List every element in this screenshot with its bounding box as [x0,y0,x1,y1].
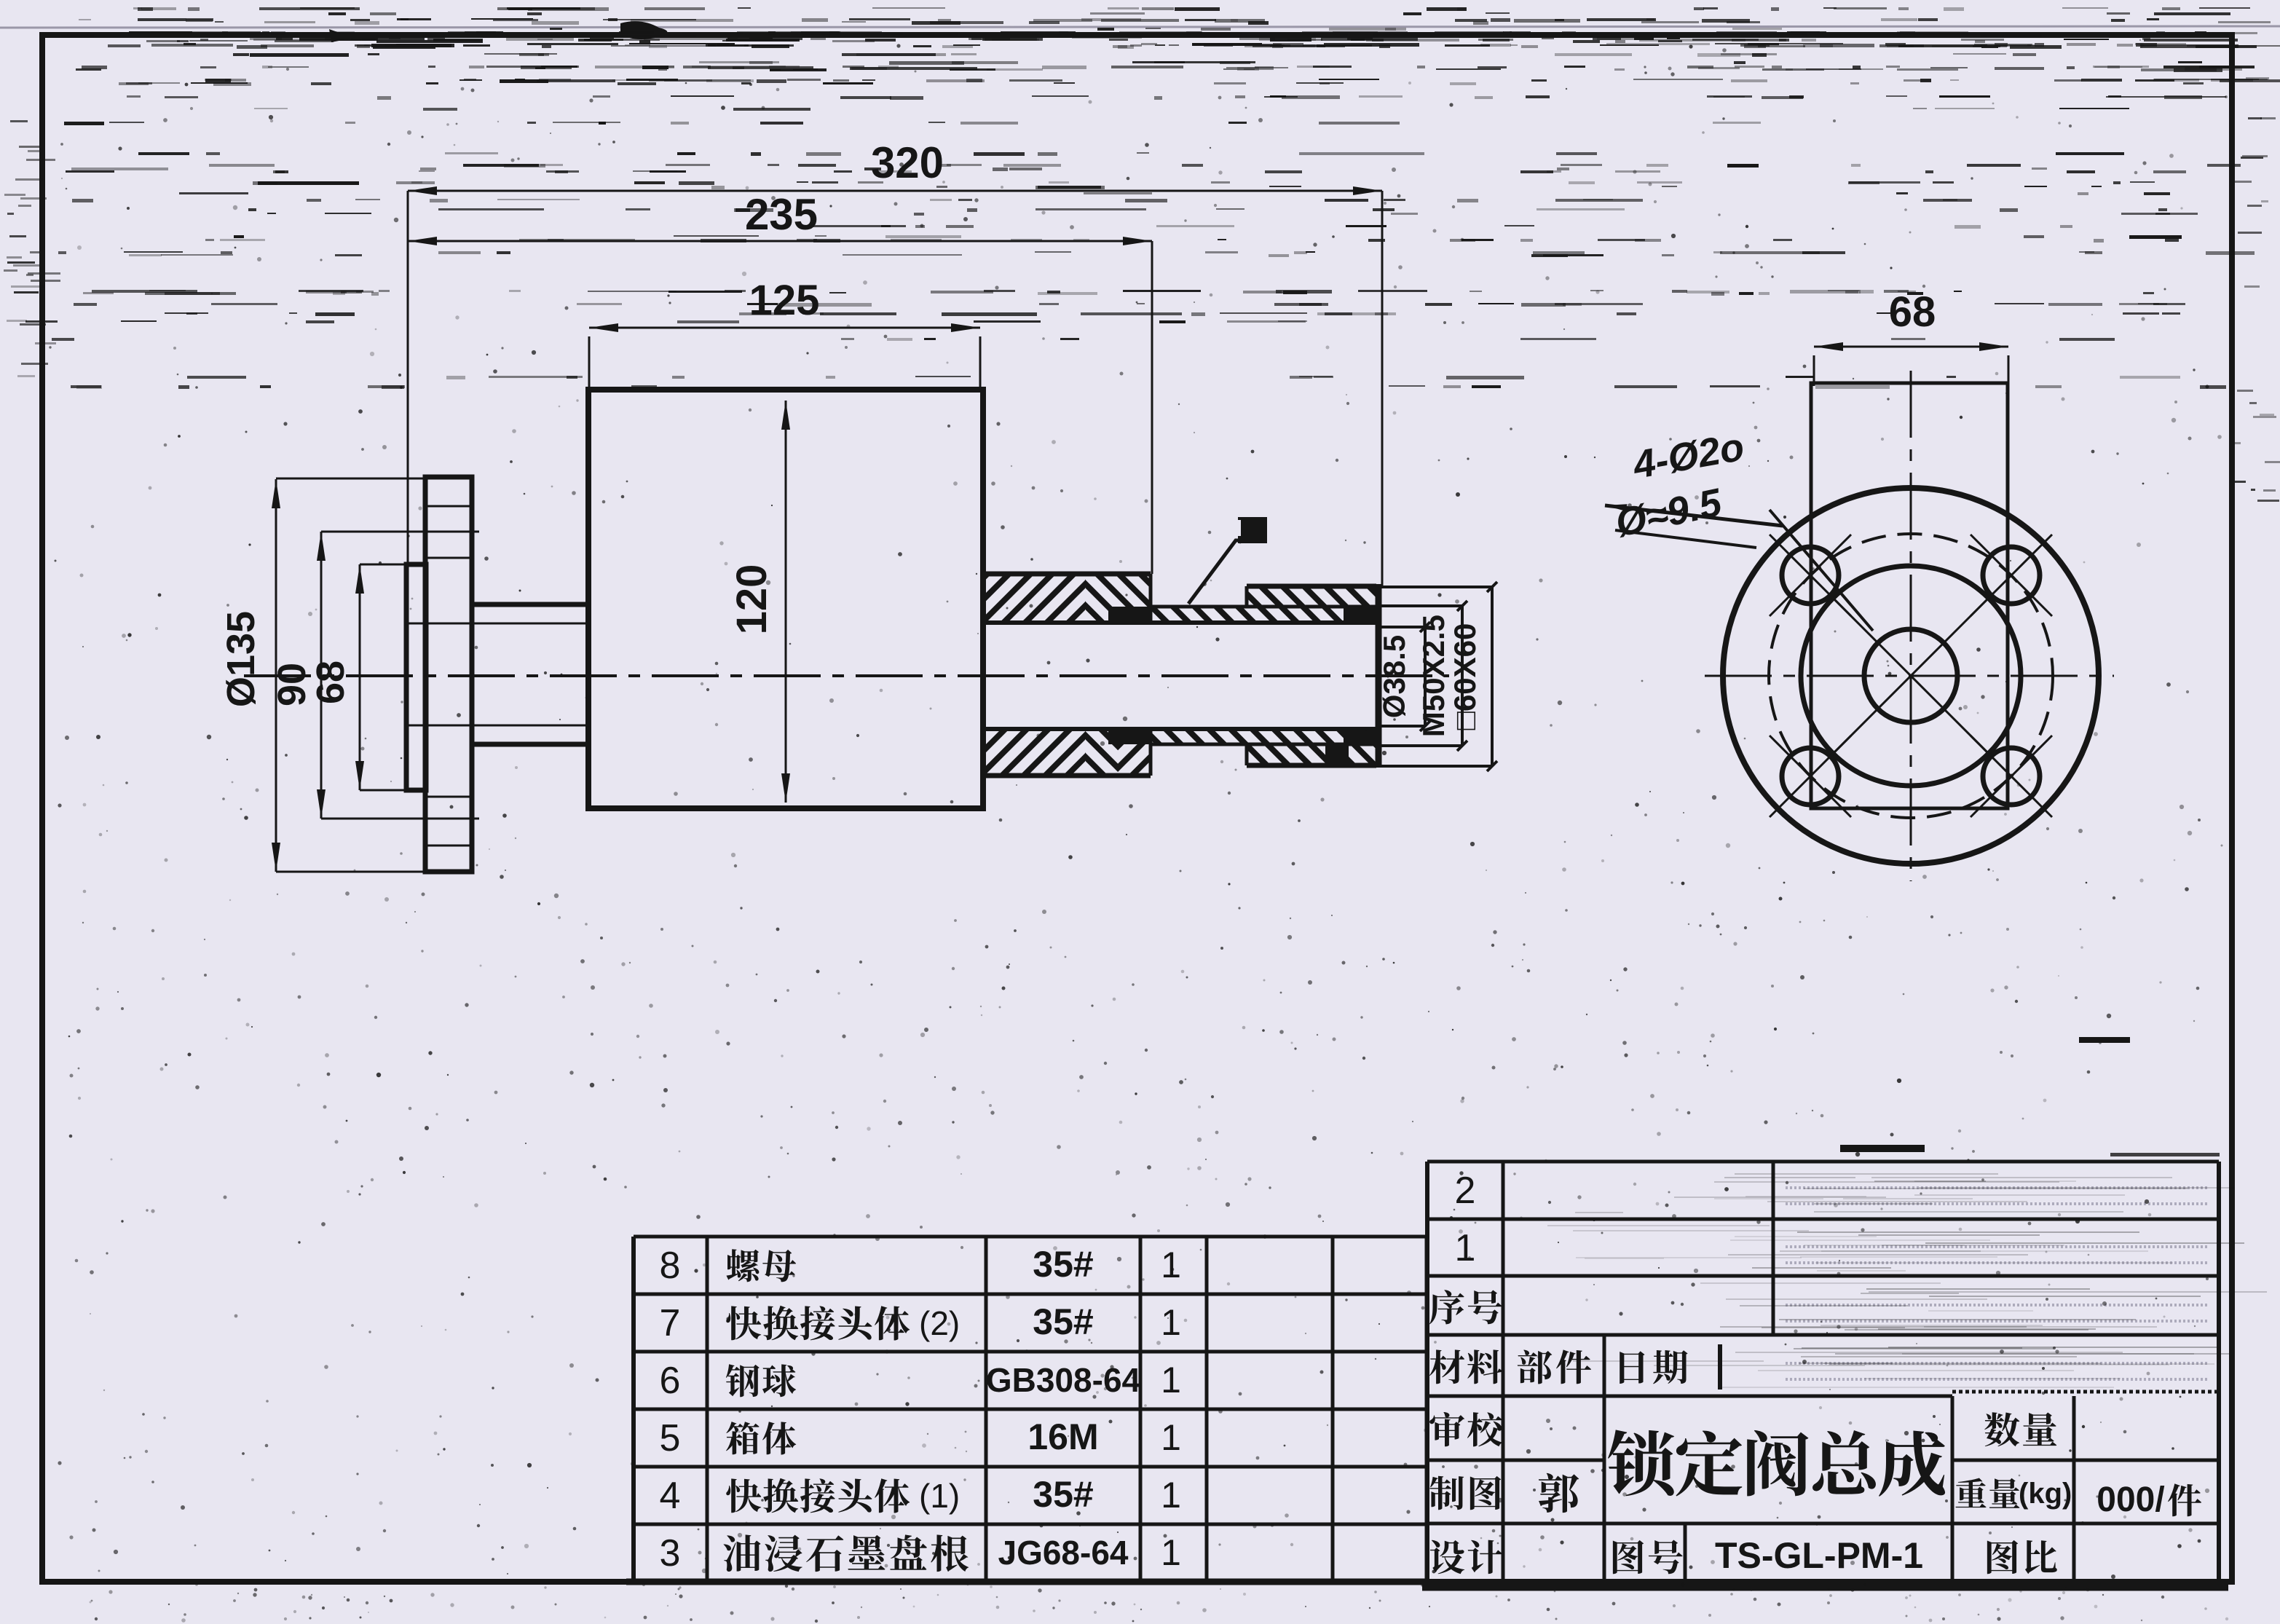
svg-text:125: 125 [749,277,820,324]
svg-text:120: 120 [728,564,776,635]
svg-text:(2): (2) [919,1304,960,1342]
svg-text:5: 5 [660,1417,681,1459]
svg-text:7: 7 [660,1302,681,1344]
svg-text:1: 1 [1161,1302,1181,1343]
svg-text:68: 68 [1889,288,1936,336]
svg-text:35#: 35# [1033,1301,1093,1342]
svg-text:GB308-64: GB308-64 [986,1361,1141,1399]
svg-text:JG68-64: JG68-64 [998,1534,1128,1572]
svg-text:90: 90 [270,663,314,706]
svg-text:6: 6 [660,1360,681,1402]
svg-text:Ø135: Ø135 [219,611,263,707]
svg-text:1: 1 [1161,1532,1181,1573]
svg-text:4: 4 [660,1475,681,1517]
svg-text:1: 1 [1161,1475,1181,1515]
svg-text:M50X2.5: M50X2.5 [1416,615,1451,737]
svg-text:(kg): (kg) [2019,1478,2072,1510]
svg-text:16M: 16M [1027,1416,1098,1457]
svg-text:2: 2 [1455,1170,1476,1212]
svg-text:35#: 35# [1033,1244,1093,1285]
svg-text:□60X60: □60X60 [1448,623,1482,730]
svg-text:(1): (1) [919,1477,960,1515]
svg-text:1: 1 [1161,1245,1181,1285]
svg-text:68: 68 [309,661,352,704]
svg-text:8: 8 [660,1245,681,1287]
svg-text:1: 1 [1455,1227,1476,1269]
svg-text:TS-GL-PM-1: TS-GL-PM-1 [1715,1535,1923,1576]
svg-text:1: 1 [1161,1417,1181,1458]
svg-text:320: 320 [871,138,944,187]
svg-text:35#: 35# [1033,1474,1093,1515]
svg-text:3: 3 [660,1532,681,1574]
svg-text:1: 1 [1161,1360,1181,1400]
svg-text:000/: 000/ [2096,1481,2164,1519]
svg-text:235: 235 [745,190,818,239]
svg-text:Ø38.5: Ø38.5 [1377,635,1411,718]
